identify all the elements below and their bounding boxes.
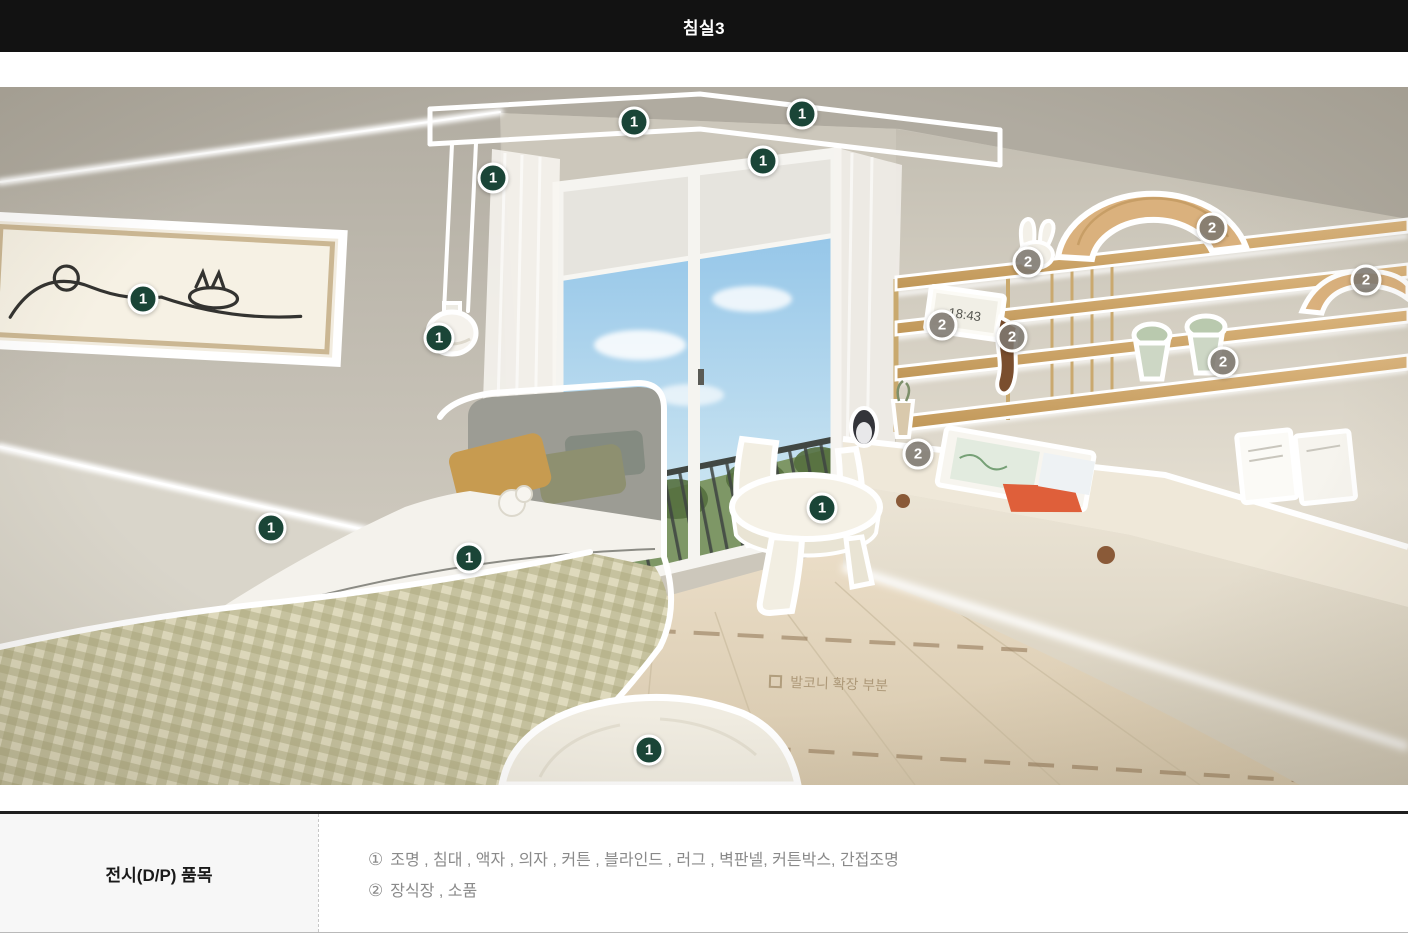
dp-items-table: 전시(D/P) 품목 ① 조명 , 침대 , 액자 , 의자 , 커튼 , 블라…: [0, 811, 1408, 933]
dp-items-label-cell: 전시(D/P) 품목: [0, 814, 318, 932]
dp-items-value-cell: ① 조명 , 침대 , 액자 , 의자 , 커튼 , 블라인드 , 러그 , 벽…: [318, 814, 1408, 932]
item-text-1: 조명 , 침대 , 액자 , 의자 , 커튼 , 블라인드 , 러그 , 벽판넬…: [390, 846, 899, 870]
photo-section: 발코니 확장 부분: [0, 87, 1408, 785]
item-prefix-1: ①: [368, 850, 383, 870]
dp-item-line-2: ② 장식장 , 소품: [368, 877, 1408, 901]
header-bar: 침실3: [0, 0, 1408, 52]
item-prefix-2: ②: [368, 881, 383, 901]
row-label: 전시(D/P) 품목: [106, 861, 213, 886]
vignette: [0, 87, 1408, 785]
item-text-2: 장식장 , 소품: [390, 877, 477, 901]
page-title: 침실3: [683, 14, 725, 39]
dp-item-line-1: ① 조명 , 침대 , 액자 , 의자 , 커튼 , 블라인드 , 러그 , 벽…: [368, 846, 1408, 870]
room-photo: 발코니 확장 부분: [0, 87, 1408, 785]
room-photo-viewport[interactable]: 발코니 확장 부분: [0, 87, 1408, 785]
